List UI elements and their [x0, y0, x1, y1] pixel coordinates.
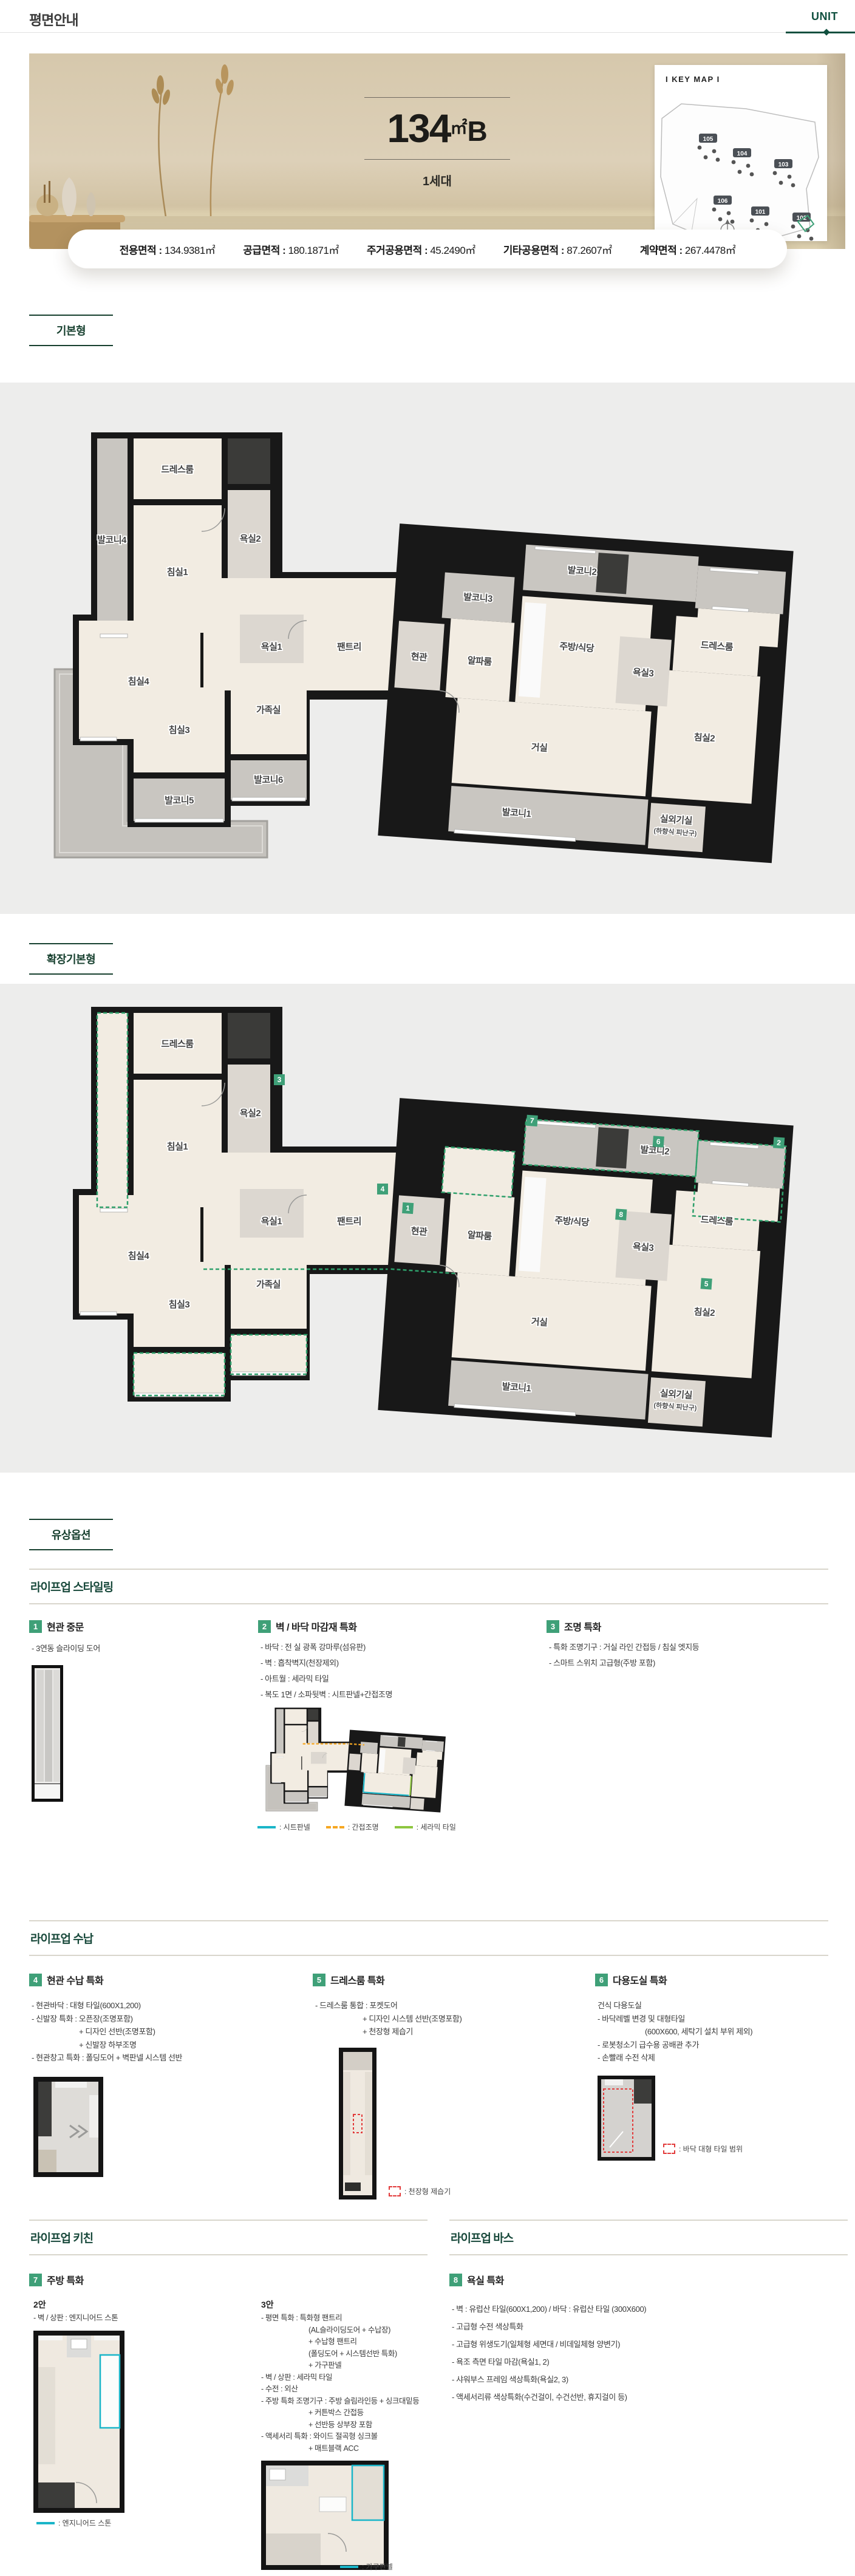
- option-5-badge: 5: [313, 1974, 325, 1986]
- legend-item: : 천장형 제습기: [389, 2186, 451, 2196]
- floorplan-page: 평면안내 UNIT 134㎡B 1세대: [0, 0, 855, 2576]
- room-label: 드레스룸: [161, 465, 194, 475]
- room-label: 가족실: [256, 705, 281, 715]
- svg-text:4: 4: [381, 1185, 385, 1193]
- option-8-specs: - 벽 : 유럽산 타일(600X1,200) / 바닥 : 유럽산 타일 (3…: [452, 2300, 646, 2406]
- room-label: 욕실1: [261, 642, 282, 652]
- option-5-specs: - 드레스룸 통합 : 포켓도어+ 디자인 시스템 선반(조명포함)+ 천장형 …: [315, 1999, 462, 2039]
- option-6-header: 6 다용도실 특화: [595, 1972, 667, 1987]
- room-label: 가족실: [256, 1279, 281, 1290]
- room-label: 실외기실: [659, 813, 692, 826]
- spec-line: - 욕조 측면 타일 마감(욕실1, 2): [452, 2353, 646, 2371]
- room-label: 침실1: [167, 1142, 188, 1152]
- room-label: 침실3: [169, 1300, 190, 1310]
- section-label-extended: 확장기본형: [29, 943, 113, 975]
- spec-line: - 벽 : 유럽산 타일(600X1,200) / 바닥 : 유럽산 타일 (3…: [452, 2300, 646, 2318]
- kitchen-optA-legend: : 엔지니어드 스톤: [36, 2518, 111, 2528]
- section-label-basic: 기본형: [29, 315, 113, 346]
- svg-text:7: 7: [530, 1116, 534, 1125]
- spec-line: + 가구판넬: [261, 2360, 419, 2372]
- room-label: 알파룸: [467, 1230, 492, 1242]
- room-label: 발코니1: [502, 1382, 531, 1394]
- legend-swatch-icon: [663, 2144, 675, 2154]
- spec-line: (폴딩도어 + 시스템선반 특화): [261, 2348, 419, 2360]
- plan-option-badge: 2: [773, 1137, 785, 1148]
- finish-highlight-plan-image: [255, 1708, 458, 1820]
- option-6-specs: 건식 다용도실- 바닥레벨 변경 및 대형타일(600X600, 세탁기 설치 …: [598, 1999, 752, 2065]
- tab-unit[interactable]: UNIT: [811, 10, 838, 23]
- room-label: 침실3: [169, 725, 190, 735]
- page-title: 평면안내: [29, 9, 78, 29]
- unit-size-number: 134: [387, 106, 450, 151]
- spec-line: - 샤워부스 프레임 색상특화(욕실2, 3): [452, 2371, 646, 2388]
- room-label: 욕실3: [632, 1241, 654, 1253]
- spec-line: - 드레스룸 통합 : 포켓도어: [315, 1999, 462, 2012]
- area-item: 기타공용면적 : 87.2607㎡: [503, 242, 612, 257]
- spec-line: - 벽 : 흡착벽지(천장제외): [261, 1655, 392, 1671]
- option-8-header: 8 욕실 특화: [449, 2272, 504, 2287]
- spec-line: (AL슬라이딩도어 + 수납장): [261, 2325, 419, 2337]
- header-divider-active: [786, 32, 855, 33]
- spec-line: - 특화 조명기구 : 거실 라인 간접등 / 침실 엣지등: [549, 1640, 699, 1655]
- plan-option-badge: 5: [701, 1278, 712, 1289]
- legend-swatch-icon: [389, 2186, 401, 2196]
- unit-type-letter: B: [467, 115, 487, 147]
- plan-option-badge: 8: [615, 1208, 627, 1220]
- svg-text:6: 6: [656, 1137, 661, 1146]
- unit-size-sqm: ㎡: [450, 118, 467, 137]
- legend-swatch-icon: [326, 1826, 344, 1828]
- room-label: 침실4: [128, 676, 150, 687]
- section-title-lifeup-bath: 라이프업 바스: [449, 2220, 848, 2255]
- svg-text:102: 102: [797, 215, 807, 222]
- option-8-badge: 8: [449, 2274, 462, 2286]
- header-divider: [0, 32, 855, 33]
- hero-rule-top: [364, 97, 510, 98]
- option-4-header: 4 현관 수납 특화: [29, 1972, 103, 1987]
- kitchen-planB-image: [261, 2461, 389, 2570]
- legend-item: : 세라믹 타일: [395, 1822, 456, 1832]
- spec-line: + 수납형 팬트리: [261, 2336, 419, 2348]
- option-8-title: 욕실 특화: [467, 2272, 504, 2287]
- plan-option-badge: 4: [377, 1184, 388, 1194]
- spec-line: - 3연동 슬라이딩 도어: [32, 1641, 100, 1657]
- option-1-specs: - 3연동 슬라이딩 도어: [32, 1641, 100, 1657]
- spec-line: - 액세서리 특화 : 와이드 절곡형 싱크볼: [261, 2431, 419, 2443]
- room-label: 현관: [410, 652, 428, 663]
- kitchen-optB-label: 3안: [261, 2298, 274, 2311]
- option-7-badge: 7: [29, 2274, 42, 2286]
- area-item: 전용면적 : 134.9381㎡: [120, 242, 216, 257]
- svg-text:101: 101: [755, 209, 766, 216]
- spec-line: - 신발장 특화 : 오픈장(조명포함): [32, 2012, 182, 2026]
- option-3-specs: - 특화 조명기구 : 거실 라인 간접등 / 침실 엣지등- 스마트 스위치 …: [549, 1640, 699, 1671]
- room-label: 발코니4: [97, 535, 127, 545]
- svg-text:1: 1: [406, 1204, 410, 1212]
- legend-item: : 시트판넬: [257, 1822, 310, 1832]
- room-label: 거실: [531, 1317, 548, 1328]
- option-7-header: 7 주방 특화: [29, 2272, 84, 2287]
- area-item: 주거공용면적 : 45.2490㎡: [367, 242, 475, 257]
- room-label: 욕실2: [240, 534, 261, 544]
- keymap-title: I KEY MAP I: [666, 75, 720, 84]
- room-label: 거실: [531, 742, 548, 754]
- room-label: 드레스룸: [161, 1039, 194, 1049]
- option-2-title: 벽 / 바닥 마감재 특화: [276, 1619, 357, 1634]
- option-2-specs: - 바닥 : 전 실 광폭 강마루(섬유판)- 벽 : 흡착벽지(천장제외)- …: [261, 1640, 392, 1703]
- entrance-storage-image: [33, 2077, 103, 2177]
- spec-line: + 디자인 시스템 선반(조명포함): [315, 2012, 462, 2026]
- svg-text:103: 103: [778, 162, 789, 168]
- room-label: 침실2: [693, 1307, 715, 1318]
- spec-line: - 고급형 수전 색상특화: [452, 2318, 646, 2336]
- plan-option-badge: 1: [402, 1202, 414, 1214]
- spec-line: 건식 다용도실: [598, 1999, 752, 2012]
- room-label: 알파룸: [467, 655, 492, 667]
- kitchen-optB-legend: : 가구판넬: [340, 2561, 393, 2572]
- spec-line: - 벽 / 상판 : 세라믹 타일: [261, 2372, 419, 2384]
- room-label: 침실1: [167, 567, 188, 578]
- spec-line: - 복도 1면 / 소파뒷벽 : 시트판넬+간접조명: [261, 1687, 392, 1703]
- room-label: 침실4: [128, 1251, 150, 1261]
- section-title-lifeup-kitchen: 라이프업 키친: [29, 2220, 428, 2255]
- spec-line: - 액세서리류 색상특화(수건걸이, 수건선반, 휴지걸이 등): [452, 2388, 646, 2406]
- floorplan-basic: 드레스룸욕실2발코니4침실1침실4욕실1팬트리침실3가족실발코니6발코니5현관알…: [43, 432, 814, 894]
- keymap-panel: I KEY MAP I 105104103106101102: [655, 65, 827, 241]
- hero-banner: 134㎡B 1세대 I KEY MAP I 105104103106101102: [29, 53, 845, 249]
- unit-size-title: 134㎡B: [273, 108, 601, 148]
- spec-line: - 손빨래 수전 삭제: [598, 2051, 752, 2065]
- room-label: 발코니5: [165, 796, 194, 806]
- plan-option-badge: 6: [653, 1136, 664, 1147]
- plan-option-badge: 7: [526, 1115, 538, 1126]
- hero-unit-block: 134㎡B 1세대: [273, 90, 601, 236]
- area-item: 계약면적 : 267.4478㎡: [640, 242, 736, 257]
- spec-line: - 평면 특화 : 특화형 팬트리: [261, 2312, 419, 2325]
- spec-line: - 현관바닥 : 대형 타일(600X1,200): [32, 1999, 182, 2012]
- option-3-title: 조명 특화: [564, 1619, 601, 1634]
- spec-line: - 주방 특화 조명기구 : 주방 슬림라인등 + 싱크대밑등: [261, 2396, 419, 2408]
- option-2-badge: 2: [258, 1620, 271, 1633]
- room-label: 발코니3: [463, 592, 493, 604]
- room-label: 실외기실: [659, 1388, 692, 1401]
- kitchen-optB-specs: - 평면 특화 : 특화형 팬트리(AL슬라이딩도어 + 수납장)+ 수납형 팬…: [261, 2312, 419, 2455]
- legend-item: : 엔지니어드 스톤: [36, 2518, 111, 2528]
- legend-item: : 간접조명: [326, 1822, 379, 1832]
- kitchen-planA-image: [33, 2331, 124, 2513]
- dressroom-legend: : 천장형 제습기: [389, 2186, 451, 2196]
- kitchen-optA-specs: - 벽 / 상판 : 엔지니어드 스톤: [33, 2312, 118, 2325]
- legend-swatch-icon: [257, 1826, 276, 1828]
- spec-line: - 수전 : 외산: [261, 2383, 419, 2396]
- legend-swatch-icon: [395, 1826, 413, 1828]
- room-label: 발코니6: [254, 775, 283, 785]
- spec-line: (600X600, 세탁기 설치 부위 제외): [598, 2025, 752, 2039]
- spec-line: + 매트블랙 ACC: [261, 2443, 419, 2455]
- room-label: 침실2: [693, 732, 715, 744]
- section-title-lifeup-styling: 라이프업 스타일링: [29, 1569, 828, 1604]
- spec-line: - 아트월 : 세라믹 타일: [261, 1671, 392, 1687]
- entrance-door-image: [32, 1665, 63, 1802]
- area-summary-bar: 전용면적 : 134.9381㎡공급면적 : 180.1871㎡주거공용면적 :…: [68, 230, 787, 268]
- legend-swatch-icon: [340, 2566, 358, 2568]
- floorplan-extended: 드레스룸욕실2침실1침실4욕실1팬트리침실3가족실34현관알파룸주방/식당발코니…: [43, 1007, 814, 1468]
- keymap-site-map: 105104103106101102: [655, 89, 827, 241]
- option-1-badge: 1: [29, 1620, 42, 1633]
- spec-line: - 바닥레벨 변경 및 대형타일: [598, 2012, 752, 2026]
- spec-line: - 스마트 스위치 고급형(주방 포함): [549, 1655, 699, 1671]
- svg-text:104: 104: [737, 151, 748, 157]
- option-6-title: 다용도실 특화: [613, 1972, 667, 1987]
- option-4-title: 현관 수납 특화: [47, 1972, 103, 1987]
- legend-item: : 바닥 대형 타일 범위: [663, 2144, 743, 2154]
- spec-line: + 커튼박스 간접등: [261, 2407, 419, 2419]
- area-item: 공급면적 : 180.1871㎡: [243, 242, 339, 257]
- room-label: 발코니1: [502, 807, 531, 819]
- svg-text:2: 2: [777, 1139, 782, 1147]
- households-label: 1세대: [273, 171, 601, 189]
- option-3-badge: 3: [547, 1620, 559, 1633]
- option-4-badge: 4: [29, 1974, 42, 1986]
- room-label: 발코니2: [567, 565, 597, 578]
- room-label: 팬트리: [337, 1216, 361, 1227]
- spec-line: + 신발장 하부조명: [32, 2039, 182, 2052]
- spec-line: - 바닥 : 전 실 광폭 강마루(섬유판): [261, 1640, 392, 1655]
- option-4-specs: - 현관바닥 : 대형 타일(600X1,200)- 신발장 특화 : 오픈장(…: [32, 1999, 182, 2065]
- section-label-paid-options: 유상옵션: [29, 1519, 113, 1550]
- option-5-header: 5 드레스룸 특화: [313, 1972, 384, 1987]
- svg-text:8: 8: [619, 1210, 624, 1219]
- svg-text:3: 3: [278, 1075, 282, 1084]
- option-1-title: 현관 중문: [47, 1619, 84, 1634]
- legend-swatch-icon: [36, 2522, 55, 2524]
- utility-legend: : 바닥 대형 타일 범위: [663, 2144, 743, 2154]
- legend-item: : 가구판넬: [340, 2561, 393, 2572]
- plan-option-badge: 3: [274, 1074, 285, 1085]
- svg-text:106: 106: [718, 198, 728, 205]
- spec-line: - 현관창고 특화 : 폴딩도어 + 벽판넬 시스템 선반: [32, 2051, 182, 2065]
- svg-text:5: 5: [704, 1279, 709, 1288]
- option-7-title: 주방 특화: [47, 2272, 84, 2287]
- dressroom-plan-image: [339, 2048, 376, 2199]
- spec-line: - 로봇청소기 급수용 공배관 추가: [598, 2039, 752, 2052]
- spec-line: - 고급형 위생도기(일체형 세면대 / 비데일체형 양변기): [452, 2336, 646, 2353]
- spec-line: + 디자인 선반(조명포함): [32, 2025, 182, 2039]
- spec-line: + 천장형 제습기: [315, 2025, 462, 2039]
- svg-text:105: 105: [703, 136, 714, 143]
- room-label: 팬트리: [337, 642, 361, 652]
- option-5-title: 드레스룸 특화: [330, 1972, 384, 1987]
- room-label: 현관: [410, 1226, 428, 1238]
- option-2-header: 2 벽 / 바닥 마감재 특화: [258, 1619, 357, 1634]
- room-label: 욕실3: [632, 667, 654, 678]
- header-divider-dot-icon: [823, 29, 829, 35]
- spec-line: - 벽 / 상판 : 엔지니어드 스톤: [33, 2312, 118, 2325]
- section-title-lifeup-storage: 라이프업 수납: [29, 1920, 828, 1956]
- spec-line: + 선반등 상부장 포함: [261, 2419, 419, 2431]
- utility-room-plan-image: [598, 2076, 655, 2161]
- option-1-header: 1 현관 중문: [29, 1619, 84, 1634]
- finish-legend: : 시트판넬: 간접조명: 세라믹 타일: [257, 1822, 456, 1832]
- room-label: 욕실1: [261, 1216, 282, 1227]
- hero-rule-bottom: [364, 159, 510, 160]
- room-label: 욕실2: [240, 1108, 261, 1119]
- kitchen-optA-label: 2안: [33, 2298, 46, 2311]
- option-6-badge: 6: [595, 1974, 608, 1986]
- option-3-header: 3 조명 특화: [547, 1619, 601, 1634]
